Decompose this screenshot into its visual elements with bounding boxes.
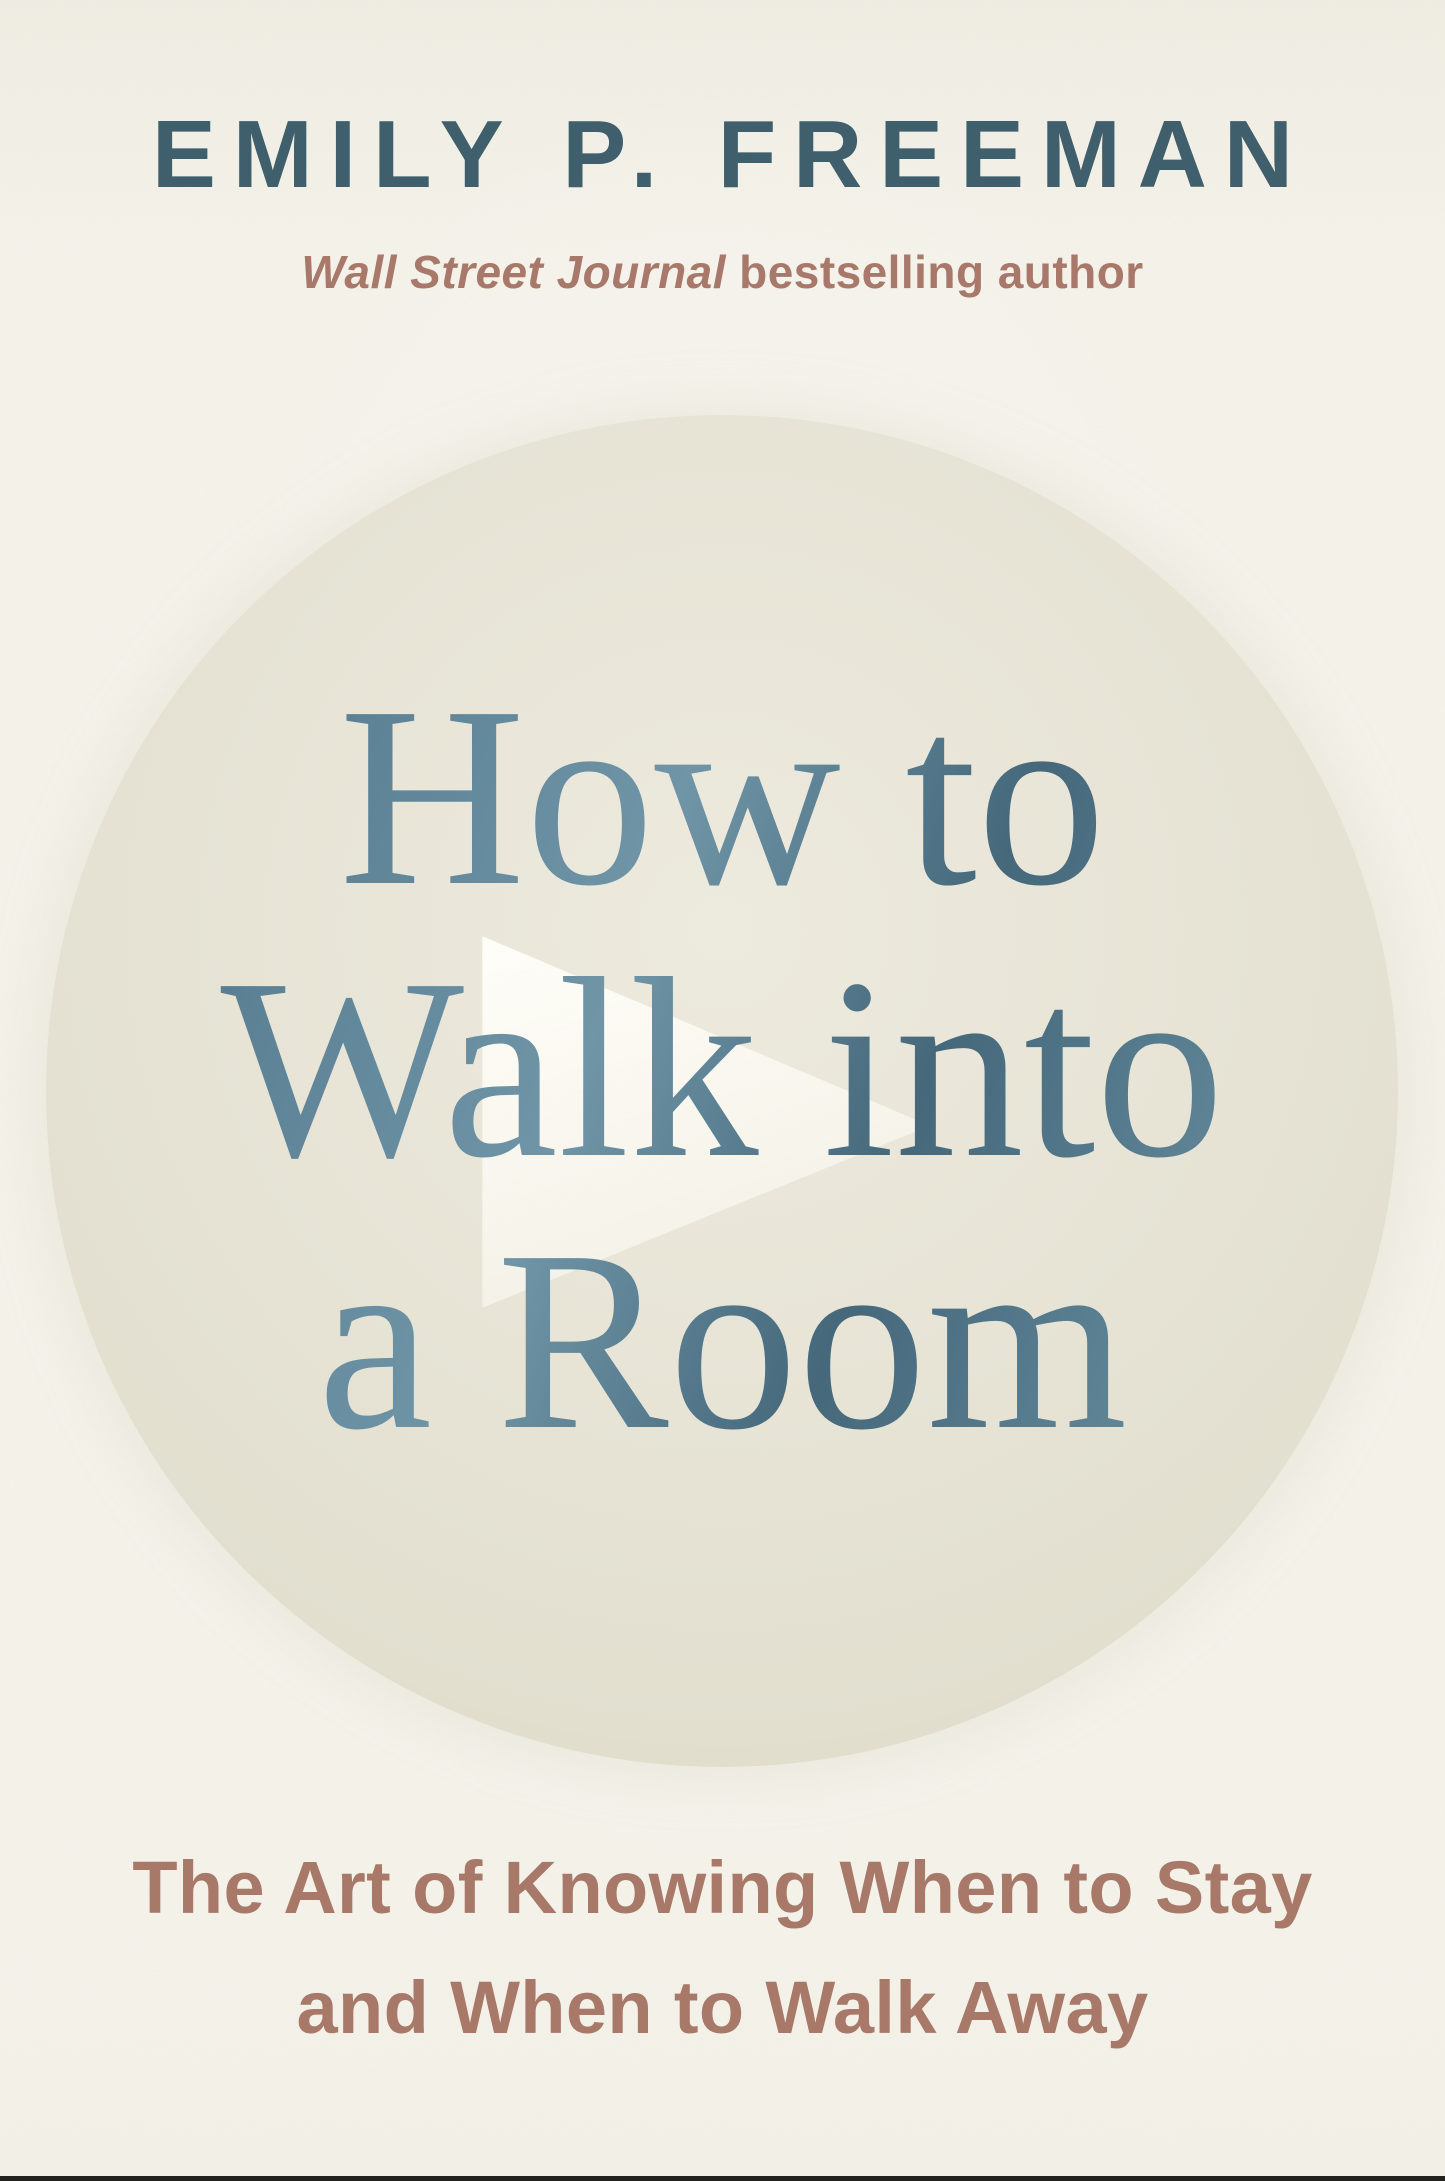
book-title: How to Walk into a Room <box>0 660 1445 1476</box>
cover-bottom-edge <box>0 2176 1445 2181</box>
title-line-2: Walk into <box>0 932 1445 1204</box>
book-subtitle: The Art of Knowing When to Stay and When… <box>0 1828 1445 2068</box>
subtitle-line-2: and When to Walk Away <box>0 1948 1445 2068</box>
credit-publication: Wall Street Journal <box>301 246 726 298</box>
author-name: EMILY P. FREEMAN <box>17 100 1445 210</box>
title-line-3: a Room <box>0 1204 1445 1476</box>
book-cover: EMILY P. FREEMAN Wall Street Journal bes… <box>0 0 1445 2181</box>
credit-line: Wall Street Journal bestselling author <box>0 240 1445 304</box>
credit-rest: bestselling author <box>726 246 1144 298</box>
title-line-1: How to <box>0 660 1445 932</box>
subtitle-line-1: The Art of Knowing When to Stay <box>0 1828 1445 1948</box>
